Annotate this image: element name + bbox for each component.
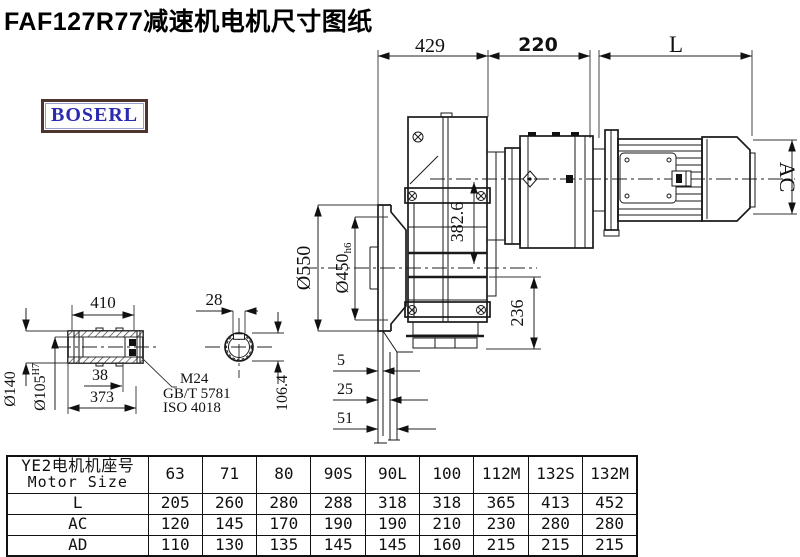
row-label-AC: AC [7, 514, 148, 535]
cell-AD-80: 135 [257, 535, 311, 556]
cell-AD-71: 130 [202, 535, 256, 556]
table-row-AD: AD 110 130 135 145 145 160 215 215 215 [7, 535, 637, 556]
dim-236-label: 236 [507, 300, 527, 327]
col-header-63: 63 [148, 456, 202, 493]
col-header-90L: 90L [365, 456, 419, 493]
cell-AD-63: 110 [148, 535, 202, 556]
page-title: FAF127R77减速机电机尺寸图纸 [4, 2, 373, 38]
cell-AC-100: 210 [420, 514, 474, 535]
cell-AD-132M: 215 [583, 535, 637, 556]
dim-450h6-label: Ø450h6 [332, 242, 354, 294]
boserl-logo-text: BOSERL [45, 103, 144, 129]
dim-5-label: 5 [337, 352, 345, 369]
row-label-AD: AD [7, 535, 148, 556]
motor-nameplate-panel [620, 153, 676, 203]
cell-AD-100: 160 [420, 535, 474, 556]
cell-L-90S: 288 [311, 493, 365, 514]
dim-140-label: Ø140 [2, 371, 19, 407]
cell-AD-112M: 215 [474, 535, 528, 556]
col-header-100: 100 [420, 456, 474, 493]
motor [604, 130, 755, 236]
dim-106-label: 106.4 [274, 375, 291, 411]
cell-AD-90L: 145 [365, 535, 419, 556]
dim-51-label: 51 [337, 410, 353, 427]
thread-standard-iso-label: ISO 4018 [163, 400, 221, 416]
cell-L-100: 318 [420, 493, 474, 514]
dim-105-tolerance: H7 [31, 363, 42, 375]
cell-AC-90S: 190 [311, 514, 365, 535]
dim-410-label: 410 [90, 293, 116, 312]
height-dimensions: 382.6 236 [447, 182, 541, 349]
dim-105H7-label: Ø105H7 [31, 363, 49, 411]
boserl-logo: BOSERL [41, 99, 148, 133]
col-header-132M: 132M [583, 456, 637, 493]
motor-size-table: YE2电机机座号 Motor Size 63 71 80 90S 90L 100… [6, 455, 638, 557]
cell-AC-80: 170 [257, 514, 311, 535]
col-header-71: 71 [202, 456, 256, 493]
table-header-row: YE2电机机座号 Motor Size 63 71 80 90S 90L 100… [7, 456, 637, 493]
cell-AD-132S: 215 [528, 535, 582, 556]
cell-AC-63: 120 [148, 514, 202, 535]
cell-L-132S: 413 [528, 493, 582, 514]
dim-105-value: Ø105 [32, 375, 49, 411]
dim-AC-label: AC [775, 162, 800, 193]
row-label-L: L [7, 493, 148, 514]
input-reducer [487, 132, 605, 248]
col-header-90S: 90S [311, 456, 365, 493]
output-flange [370, 205, 413, 443]
table-header-en: Motor Size [8, 475, 148, 491]
ac-dimension: AC [753, 140, 800, 214]
col-header-132S: 132S [528, 456, 582, 493]
bottom-offset-dimensions: 5 25 51 [333, 352, 436, 429]
cell-AC-71: 145 [202, 514, 256, 535]
cell-AC-90L: 190 [365, 514, 419, 535]
drawing-sheet: 429 220 L Ø550 Ø450h6 [0, 0, 800, 557]
cell-AD-90S: 145 [311, 535, 365, 556]
cell-AC-132S: 280 [528, 514, 582, 535]
cell-L-71: 260 [202, 493, 256, 514]
col-header-112M: 112M [474, 456, 528, 493]
dim-38-label: 38 [92, 367, 108, 384]
dim-L-label: L [669, 32, 683, 57]
dim-28-label: 28 [206, 290, 223, 309]
cell-AC-132M: 280 [583, 514, 637, 535]
table-row-AC: AC 120 145 170 190 190 210 230 280 280 [7, 514, 637, 535]
cell-L-90L: 318 [365, 493, 419, 514]
dim-25-label: 25 [337, 381, 353, 398]
dim-450-tolerance: h6 [342, 242, 354, 254]
cell-AC-112M: 230 [474, 514, 528, 535]
dim-429-label: 429 [415, 35, 445, 57]
cell-L-112M: 365 [474, 493, 528, 514]
dim-550-label: Ø550 [293, 246, 315, 290]
cell-L-80: 280 [257, 493, 311, 514]
col-header-80: 80 [257, 456, 311, 493]
output-shaft-detail [68, 328, 143, 366]
table-row-L: L 205 260 280 288 318 318 365 413 452 [7, 493, 637, 514]
dim-382-label: 382.6 [447, 202, 467, 243]
cell-L-132M: 452 [583, 493, 637, 514]
dim-450-value: Ø450 [332, 254, 352, 294]
dim-373-label: 373 [90, 389, 114, 406]
dim-220-label: 220 [518, 34, 558, 56]
table-header-motor-size: YE2电机机座号 Motor Size [7, 456, 148, 493]
thread-spec-label: M24 [180, 371, 209, 387]
cell-L-63: 205 [148, 493, 202, 514]
